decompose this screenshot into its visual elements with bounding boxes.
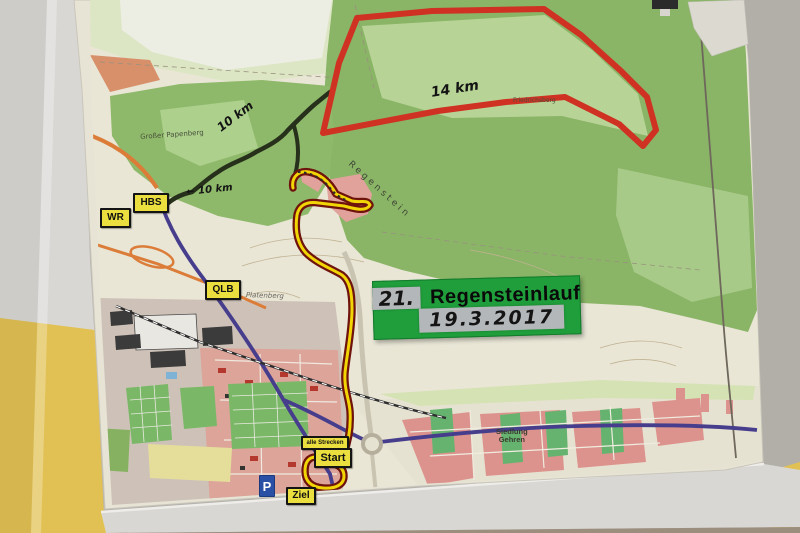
event-date: 19.3.2017	[419, 305, 565, 333]
place-platenberg: Platenberg	[246, 292, 284, 300]
place-friedrichsberg: Friedrichsberg	[513, 98, 556, 104]
map-scene	[0, 0, 800, 533]
binder-clip-tab	[660, 9, 670, 16]
large-hall-roof	[134, 314, 198, 350]
place-siedlung-gehren: Siedlung Gehren	[496, 428, 528, 443]
map-print	[70, 0, 770, 525]
yellow-field	[148, 444, 232, 482]
event-title: Regensteinlauf	[430, 283, 581, 307]
road-sign-hbs: HBS	[133, 193, 169, 213]
road-sign-wr: WR	[100, 208, 131, 228]
event-edition: 21.	[372, 287, 420, 310]
ziel-sign: Ziel	[286, 487, 316, 505]
pond	[166, 372, 177, 379]
event-sign: 21. Regensteinlauf 19.3.2017	[372, 275, 582, 340]
place-siedlung-line2: Gehren	[499, 436, 525, 444]
parking-sign: P	[259, 475, 275, 497]
binder-clip	[652, 0, 678, 9]
start-sign: Start	[314, 448, 352, 468]
road-sign-qlb: QLB	[205, 280, 241, 300]
photo-of-race-map: WR HBS QLB alle Strecken Start Ziel P 21…	[0, 0, 800, 533]
roundabout	[363, 435, 381, 453]
